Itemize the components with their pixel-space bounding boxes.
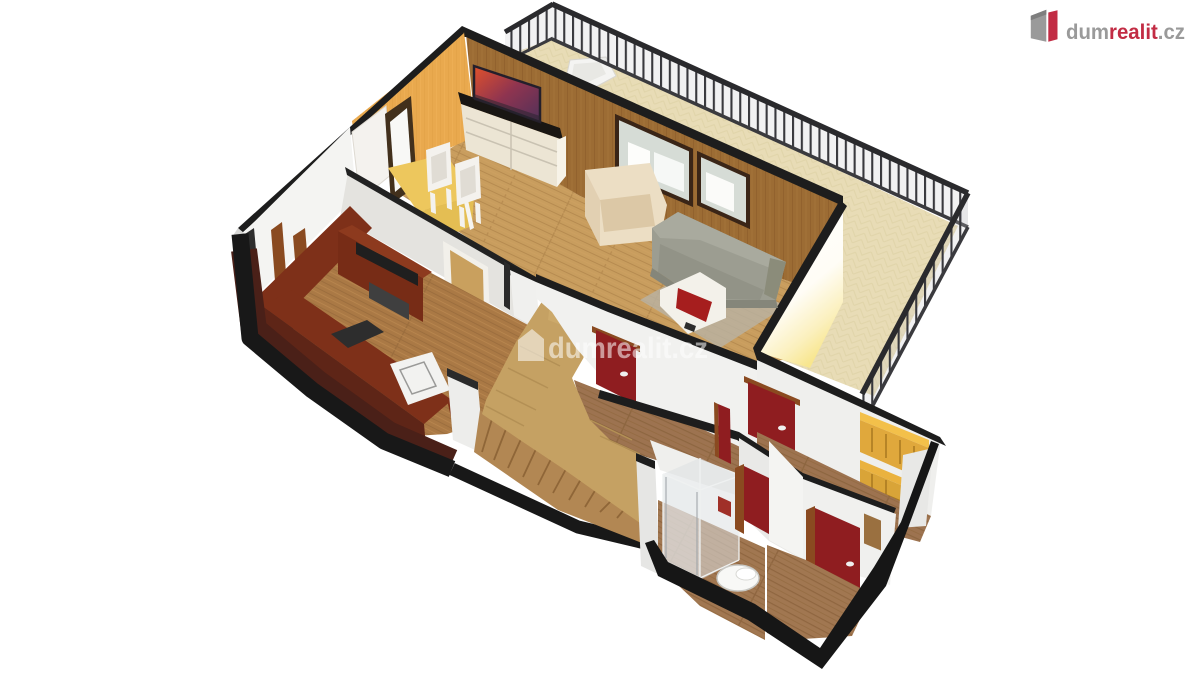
svg-text:dumrealit.cz: dumrealit.cz bbox=[1066, 21, 1185, 44]
svg-text:dumrealit.cz: dumrealit.cz bbox=[548, 332, 708, 365]
